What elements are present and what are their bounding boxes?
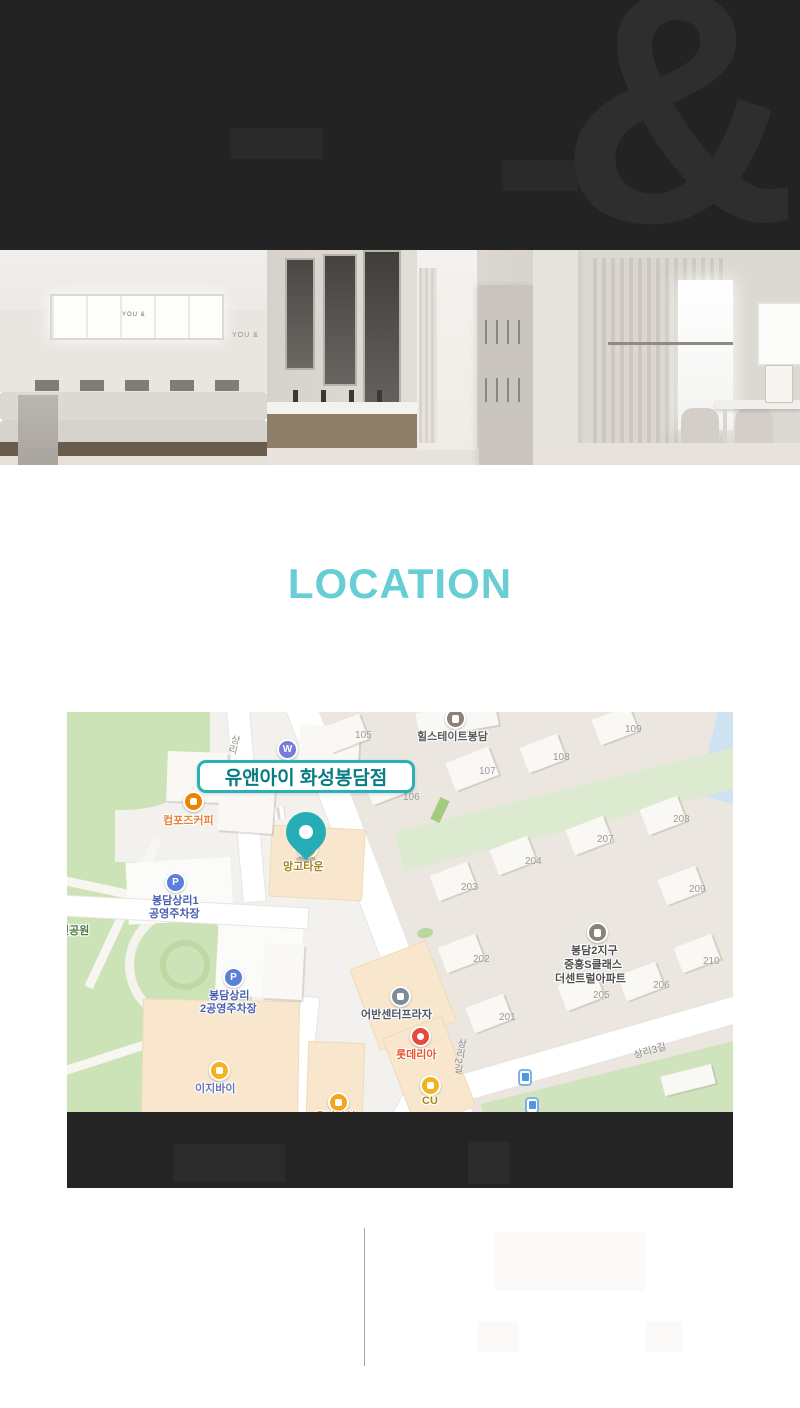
ampersand-watermark: & xyxy=(560,0,800,250)
building-number: 207 xyxy=(597,834,614,845)
ghost-logo-header-1 xyxy=(230,128,323,159)
building-number: 206 xyxy=(653,980,670,991)
page: & YOU & YOU & xyxy=(0,0,800,1408)
building-number: 203 xyxy=(461,882,478,893)
poi-label-lotteria: 롯데리아 xyxy=(396,1046,436,1062)
building-number: 108 xyxy=(553,752,570,763)
poi-label-park: 민공원 xyxy=(67,922,89,938)
easyby-icon xyxy=(209,1060,230,1081)
building-number: 106 xyxy=(403,792,420,803)
room-shelf xyxy=(608,342,733,345)
lounge-headboards xyxy=(35,380,240,391)
wash-counter xyxy=(267,402,417,414)
hero-header: & xyxy=(0,0,800,250)
poi-label-parking2-line2: 2공영주차장 xyxy=(200,1000,257,1016)
bus-stop-icon-1 xyxy=(518,1069,532,1086)
parking2-icon: P xyxy=(223,967,244,988)
map-park-mound xyxy=(160,940,210,990)
poi-label-jungheung-line3: 더센트럴아파트 xyxy=(555,970,626,986)
building-number: 201 xyxy=(499,1012,516,1023)
lounge-wall-brand-text: YOU & xyxy=(232,332,259,339)
map-image[interactable]: 105 106 107 108 109 201 202 203 204 205 … xyxy=(67,712,733,1112)
poi-label-cu: CU xyxy=(422,1095,438,1107)
poi-label-easyby: 이지바이 xyxy=(195,1080,235,1096)
bus-stop-icon-2 xyxy=(525,1097,539,1112)
location-title: LOCATION xyxy=(0,560,800,608)
hallway-curtain xyxy=(419,268,437,443)
wash-mirror-1 xyxy=(285,258,315,370)
building-number: 204 xyxy=(525,856,542,867)
room-left-wall xyxy=(533,250,578,465)
ghost-footer-logo-large xyxy=(495,1232,646,1291)
store-name-text: 유앤아이 화성봉담점 xyxy=(225,763,388,790)
lounge-sign-text: YOU & xyxy=(122,312,146,318)
ghost-footer-logo-small-1 xyxy=(477,1321,519,1352)
photo-consult-room xyxy=(533,250,800,465)
ghost-logo-band-1 xyxy=(173,1144,285,1182)
store-name-badge: 유앤아이 화성봉담점 xyxy=(197,760,415,793)
jungheung-icon xyxy=(587,922,608,943)
w-poi-icon: W xyxy=(277,739,298,760)
poi-label-compose: 컴포즈커피 xyxy=(163,812,214,828)
locker-handles-row-2 xyxy=(485,378,527,402)
parking1-icon: P xyxy=(165,872,186,893)
urban-center-icon xyxy=(390,986,411,1007)
photo-washstand xyxy=(267,250,533,465)
locker-wall xyxy=(479,285,533,465)
room-whiteboard xyxy=(757,302,800,366)
building-number: 105 xyxy=(355,730,372,741)
poi-label-parking1-line2: 공영주차장 xyxy=(149,905,200,921)
room-monitor xyxy=(765,365,793,403)
room-floor xyxy=(533,443,800,465)
photo-spa-lounge: YOU & YOU & xyxy=(0,250,267,465)
ghost-footer-logo-small-2 xyxy=(645,1321,683,1352)
building-number: 209 xyxy=(689,884,706,895)
building-number: 205 xyxy=(593,990,610,1001)
wash-bottles xyxy=(293,390,383,402)
building-number: 107 xyxy=(479,766,496,777)
poi-label-hillstate: 힐스테이트봉담 xyxy=(417,728,488,744)
wash-mirror-2 xyxy=(323,254,357,386)
pin-hole xyxy=(296,822,316,842)
info-band xyxy=(67,1112,733,1188)
wash-cabinet xyxy=(267,414,417,448)
building-number: 202 xyxy=(473,954,490,965)
building-number: 210 xyxy=(703,956,720,967)
locker-handles-row-1 xyxy=(485,320,527,344)
building-number: 109 xyxy=(625,724,642,735)
footer-divider-line xyxy=(364,1228,365,1366)
lotteria-icon xyxy=(410,1026,431,1047)
lounge-pedestal xyxy=(18,395,58,465)
building-number: 208 xyxy=(673,814,690,825)
wash-mirror-3 xyxy=(363,250,401,404)
poi-label-urban: 어반센터프라자 xyxy=(361,1006,432,1022)
cu-icon xyxy=(420,1075,441,1096)
coffee-icon xyxy=(183,791,204,812)
ghost-logo-band-2 xyxy=(468,1142,510,1184)
map-building-west-4 xyxy=(262,943,305,1000)
photo-strip: YOU & YOU & xyxy=(0,250,800,465)
